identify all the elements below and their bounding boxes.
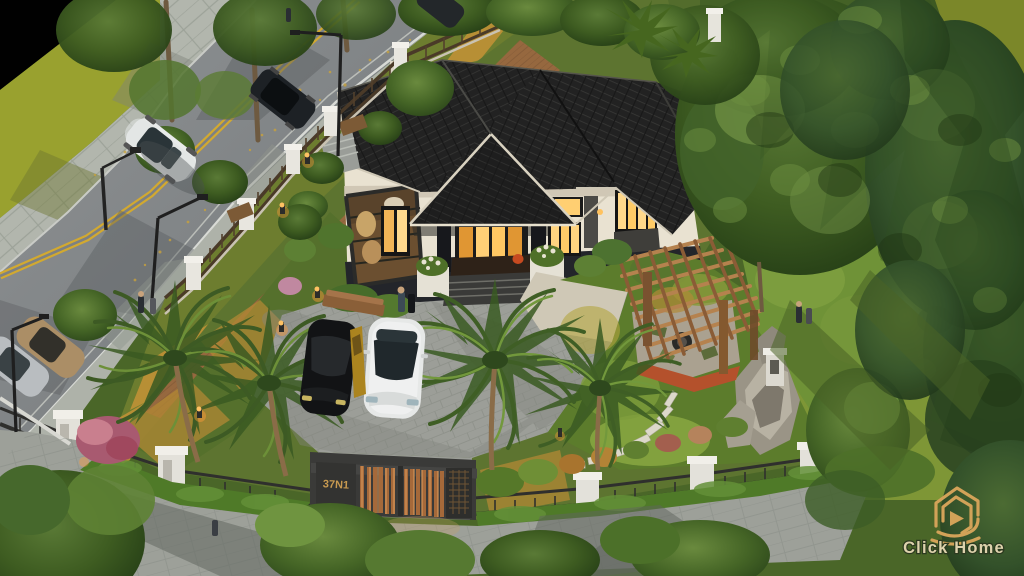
svg-text:Click Home: Click Home (903, 539, 1005, 557)
svg-text:37N1: 37N1 (323, 478, 350, 491)
